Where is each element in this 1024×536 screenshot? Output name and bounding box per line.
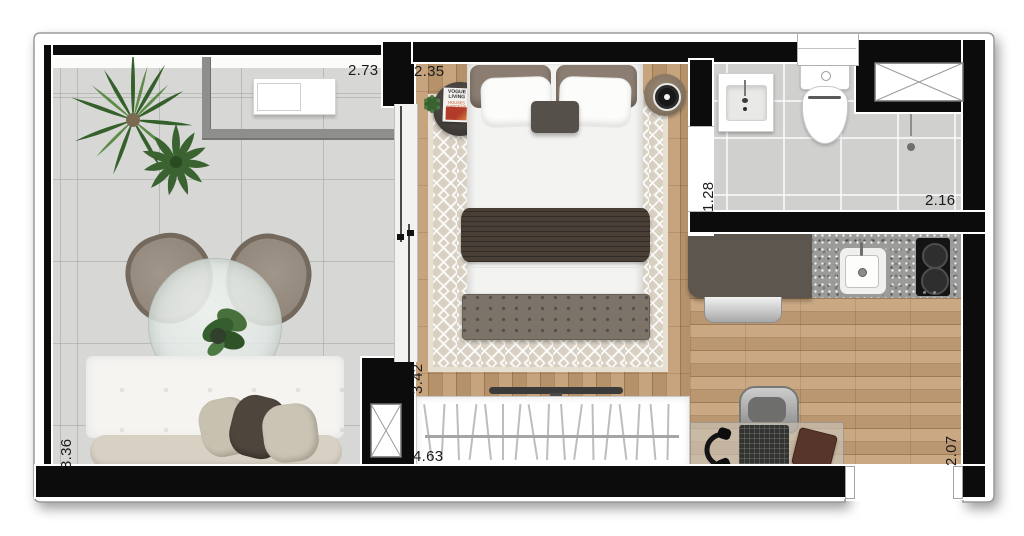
bathroom-sink-basin [726,85,767,121]
balcony-partition-rail [202,129,396,140]
table-plant [196,300,256,364]
wall-balcony-top [44,45,390,55]
hanger [636,404,641,460]
hanger [667,404,670,460]
kitchen-sink [838,246,888,296]
balcony-cabinet-door [257,83,301,111]
cooktop [916,238,950,296]
entrance-door-jamb [845,466,855,499]
cooktop-burner [922,243,948,269]
dim-kitchen-depth: 2.07 [944,436,959,466]
shaft-box [874,62,964,102]
under-counter-fridge [704,297,782,323]
bathroom-faucet-spout [742,98,748,103]
hanger [469,404,478,460]
laptop [739,425,789,469]
dim-closet-width: 4.63 [413,449,443,464]
bed-cushion [531,101,579,133]
desk-chair-seat [748,397,786,423]
wall-bottom [36,466,852,497]
hanger [546,404,550,460]
bed-throw-blanket [461,208,650,262]
sink-drain [858,268,867,277]
closet [416,396,690,470]
closet-hangers [423,399,683,465]
sliding-door-handle [407,230,414,236]
headphones [694,427,734,471]
hanger [604,404,612,460]
dim-balcony-depth: 3.36 [59,439,74,469]
sliding-door [394,104,418,362]
cooktop-knob [933,291,936,294]
dim-balcony-width: 2.73 [348,63,378,78]
toilet-window-sill [798,48,856,49]
sliding-door-panel [408,224,410,362]
sink-faucet [860,242,863,256]
entrance-door-jamb [953,466,963,499]
sliding-door-panel [400,106,402,242]
vinyl-record [653,83,681,111]
hanger [528,404,539,460]
hanger [515,404,522,460]
shower-head [898,134,924,160]
wall-balcony-left [44,45,51,470]
hanger [650,404,657,460]
hanger [502,404,504,460]
magazine-photo [445,107,466,121]
wall-divider-top-stub [383,42,414,106]
nightstand-plant [416,88,448,120]
wall-top [413,42,798,62]
hanger [560,404,566,460]
dim-bathroom-door-wall: 1.28 [701,182,716,212]
hanger [484,404,492,460]
bed-bench [462,294,650,340]
hanger [592,404,595,460]
hanger [573,404,583,460]
toilet-flush-button [821,71,831,81]
dim-bathroom-width: 2.16 [925,193,955,208]
sofa-pillow [260,401,322,465]
palm-plant [48,42,228,212]
dim-bedroom-depth: 3.42 [410,364,425,394]
toilet-seat-line [808,96,841,99]
balcony-cabinet [253,78,336,115]
hanger [456,404,460,460]
kitchen-counter-dark [688,232,812,298]
bathroom-faucet [744,80,746,96]
sliding-door-handle [397,234,404,240]
bathroom-sink [718,73,774,132]
duvet-fold [471,267,639,268]
entrance-opening [846,464,960,501]
wall-bathroom-left-upper [690,60,712,128]
shaft-box [370,403,402,458]
closet-rail [425,435,679,438]
shower-hose [910,108,912,136]
floor-plan: VOGUE LIVING HOUSES GARDENS PEOPLE [0,0,1024,536]
wall-bathroom-bottom [690,212,985,232]
dim-bedroom-width: 2.35 [414,64,444,79]
cooktop-knob [923,291,926,294]
record-center [664,94,670,100]
bathroom-drain [743,107,747,111]
toilet-window [797,33,859,66]
hanger [619,404,628,460]
shower-head-center [907,143,915,151]
wall-right [963,40,985,498]
